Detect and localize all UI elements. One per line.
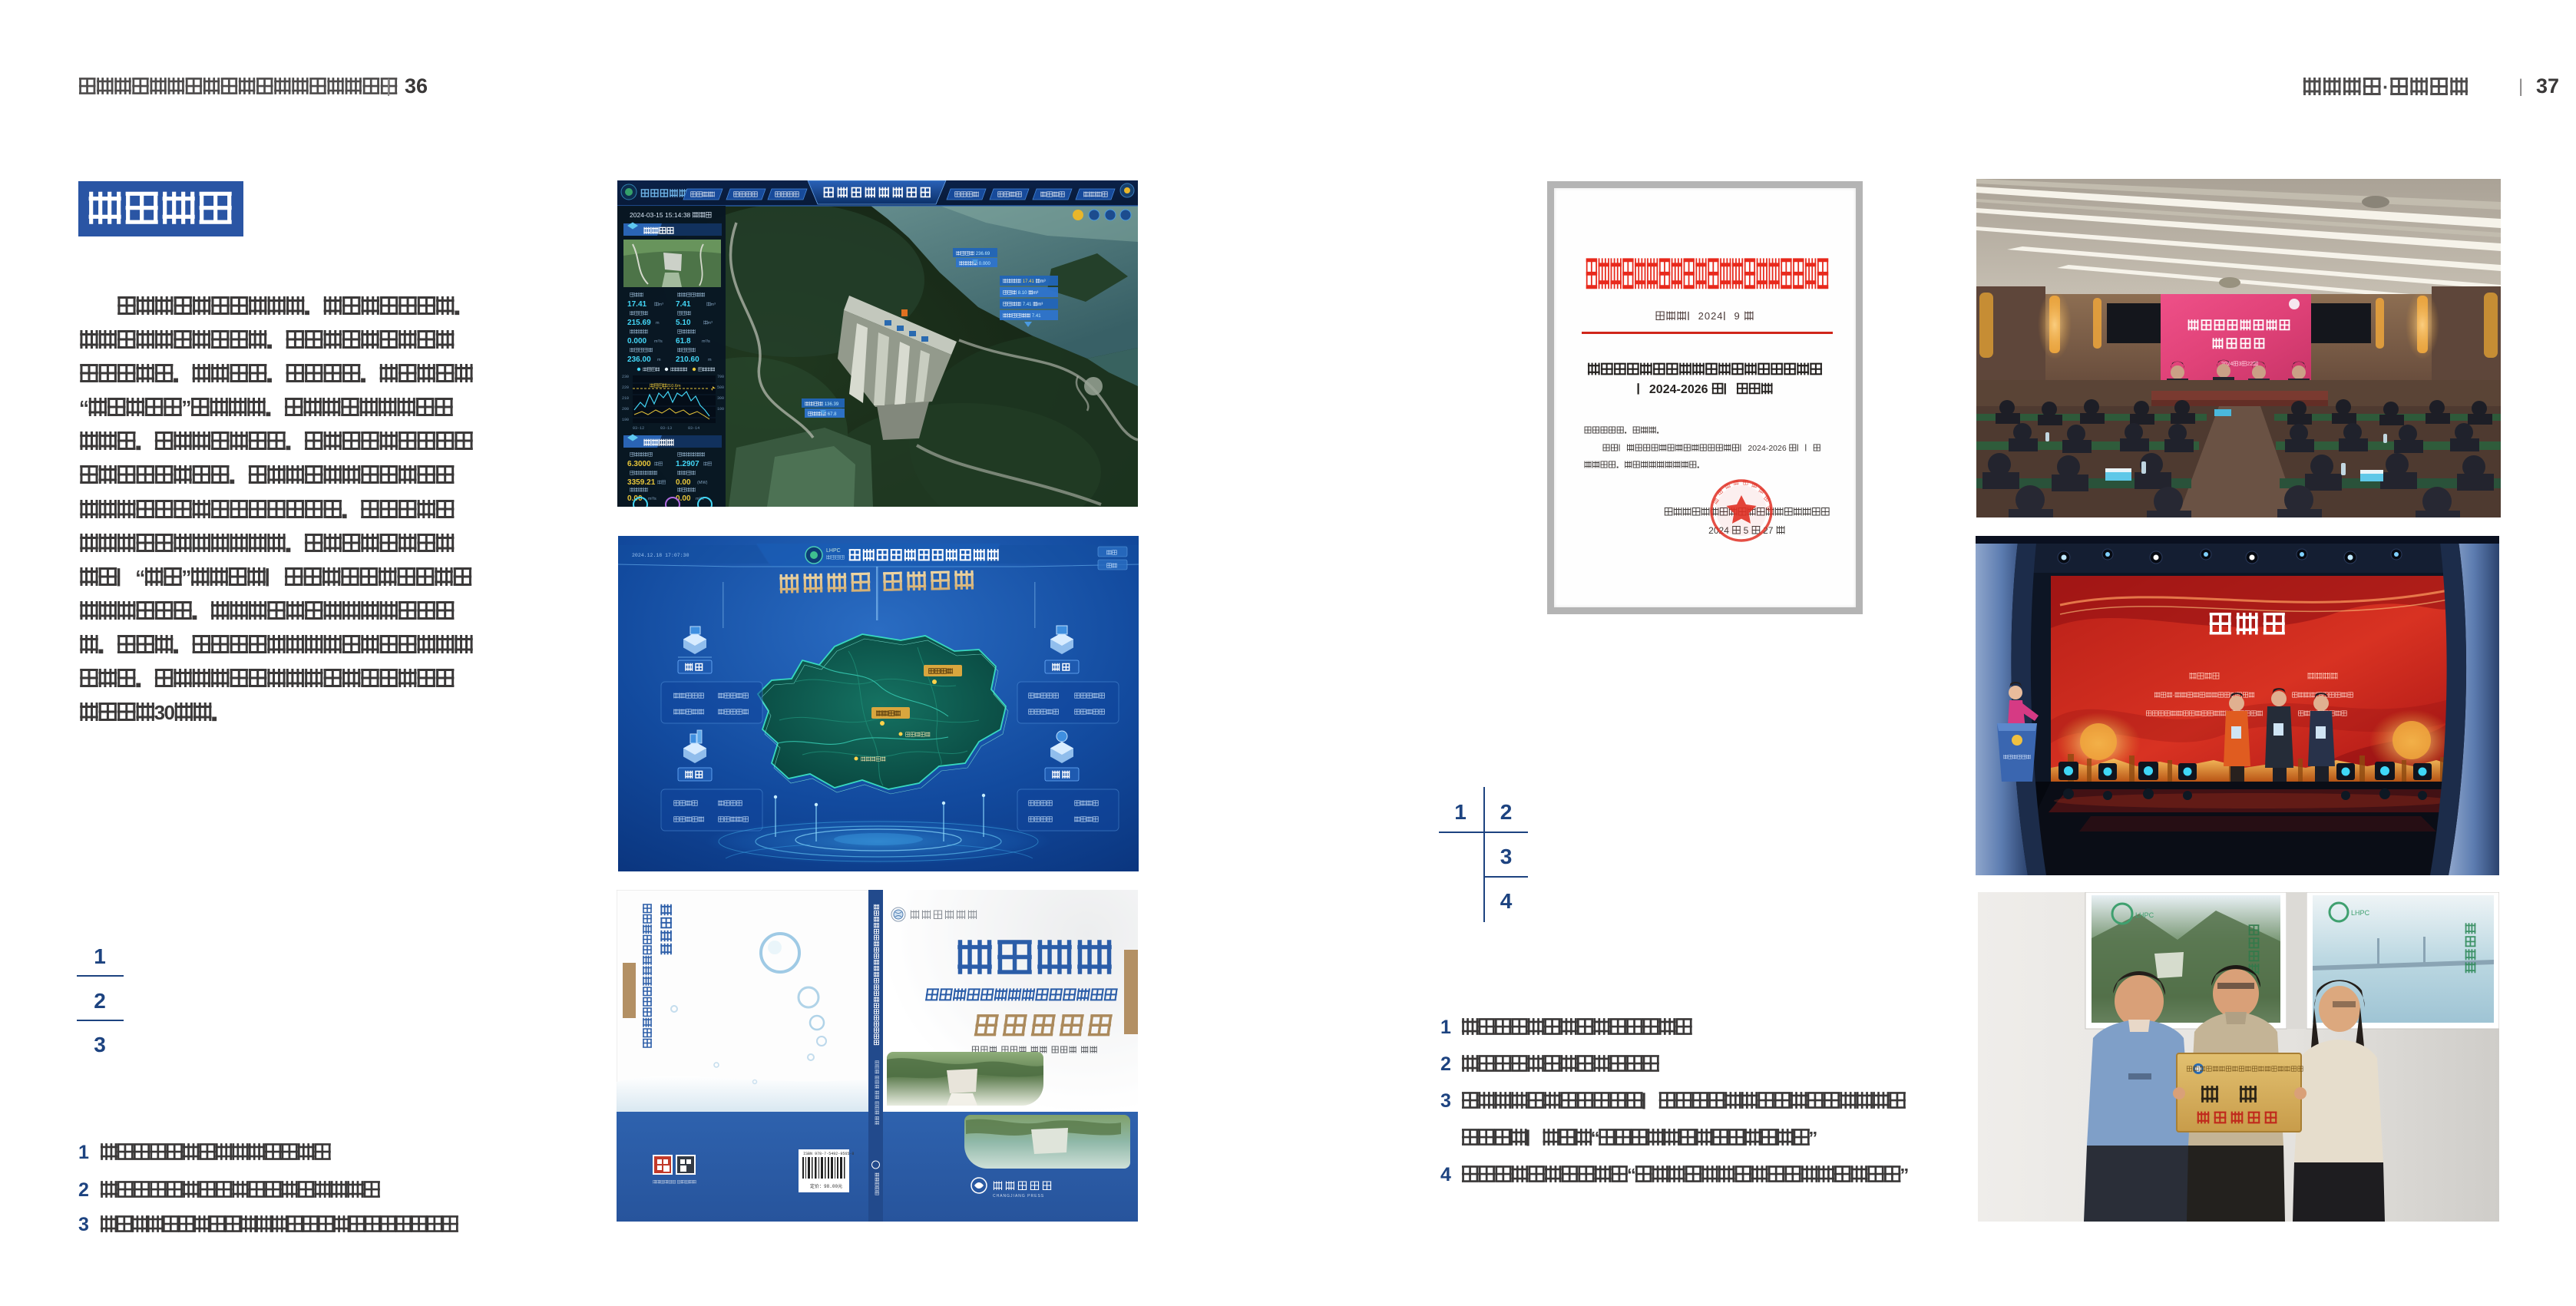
svg-text:监管全覆盖: 监管全覆盖: [673, 693, 704, 699]
svg-text:汛限水位210.6m: 汛限水位210.6m: [650, 383, 681, 388]
svg-text:总库容量 17.41 亿m³: 总库容量 17.41 亿m³: [1003, 279, 1046, 284]
svg-text:调度执行: 调度执行: [1040, 191, 1065, 198]
svg-text:三江口水库: 三江口水库: [861, 757, 886, 762]
svg-text:m: m: [657, 358, 661, 362]
svg-text:皂市水库: 皂市水库: [928, 667, 953, 675]
svg-text:江垭水库: 江垭水库: [876, 709, 901, 717]
svg-text:当前出力: 当前出力: [677, 471, 696, 476]
svg-text:创新创业竞赛: 创新创业竞赛: [2003, 755, 2031, 760]
svg-text:及时检修: 及时检修: [1028, 800, 1053, 807]
svg-text:研究与应用: 研究与应用: [973, 1013, 1119, 1040]
svg-text:亿m³: 亿m³: [703, 320, 713, 326]
svg-text:管理全周期: 管理全周期: [718, 709, 749, 716]
svg-text:澧水流域: 澧水流域: [956, 938, 1116, 980]
svg-text:2024-03-15 15:14:38 星期五: 2024-03-15 15:14:38 星期五: [630, 211, 712, 219]
svg-text:现代化水库运行管理矩阵: 现代化水库运行管理矩阵: [848, 548, 1000, 563]
svg-text:年发电计划: 年发电计划: [630, 452, 653, 458]
svg-text:预报精准化: 预报精准化: [1028, 693, 1059, 699]
svg-text:发电流量: 发电流量: [630, 488, 648, 493]
svg-text:7.41: 7.41: [676, 300, 691, 309]
svg-text:万度: 万度: [657, 480, 666, 485]
svg-text:0.00: 0.00: [627, 494, 643, 503]
svg-text:管控全天候: 管控全天候: [673, 709, 704, 716]
svg-text:m: m: [708, 358, 712, 362]
svg-text:完善体制: 完善体制: [673, 800, 698, 807]
svg-text:要素全要素: 要素全要素: [718, 693, 749, 699]
svg-text:(MW): (MW): [697, 481, 708, 485]
svg-text:菜单: 菜单: [1106, 563, 1117, 569]
svg-text:亿m³: 亿m³: [706, 302, 716, 307]
svg-text:澧水流域防洪控制水库汛期运行水位优化研究与应用: 澧水流域防洪控制水库汛期运行水位优化研究与应用: [873, 904, 880, 1045]
svg-text:澧水公司: 澧水公司: [826, 555, 845, 560]
svg-text:0.00: 0.00: [676, 478, 691, 487]
svg-text:蓄水量 8.10 亿m³: 蓄水量 8.10 亿m³: [1003, 290, 1038, 296]
svg-text:天气: 天气: [1106, 550, 1117, 556]
svg-text:出库流量: 出库流量: [677, 329, 696, 335]
svg-text:项目名称: 项目名称: [2189, 673, 2220, 681]
svg-text:190: 190: [622, 418, 629, 422]
svg-text:210.60: 210.60: [676, 355, 699, 364]
svg-text:定期体检: 定期体检: [1074, 800, 1099, 807]
svg-text:预演数字化: 预演数字化: [1028, 709, 1059, 716]
svg-text:长江出版社: 长江出版社: [993, 1180, 1054, 1192]
svg-text:200: 200: [622, 407, 629, 412]
svg-text:洪水预警: 洪水预警: [733, 191, 758, 198]
svg-text:220: 220: [622, 385, 629, 390]
svg-text:长江设计文库: 长江设计文库: [910, 909, 979, 921]
svg-text:100: 100: [717, 407, 724, 412]
svg-text:四制: 四制: [685, 770, 705, 780]
svg-text:澧: 澧: [1733, 480, 1739, 487]
svg-text:剩余防洪库容 7.41: 剩余防洪库容 7.41: [1003, 313, 1041, 319]
svg-text:230: 230: [622, 375, 629, 379]
svg-text:m³/s: m³/s: [648, 497, 656, 501]
svg-text:m: m: [656, 321, 660, 326]
svg-text:入库流量: 入库流量: [670, 367, 688, 372]
svg-text:定价：98.00元: 定价：98.00元: [810, 1183, 842, 1189]
svg-text:完善责任制: 完善责任制: [718, 816, 749, 823]
svg-text:宜冲桥水库: 宜冲桥水库: [905, 732, 931, 738]
svg-text:防洪控制水库汛期运行水位优化: 防洪控制水库汛期运行水位优化: [642, 903, 653, 1049]
svg-text:四预: 四预: [1052, 663, 1072, 673]
svg-text:亿m³: 亿m³: [654, 302, 663, 307]
svg-text:年累计发电量: 年累计发电量: [677, 452, 705, 458]
svg-text:澧水流域: 澧水流域: [659, 904, 673, 956]
svg-text:3359.21: 3359.21: [627, 478, 656, 487]
svg-text:水: 水: [1743, 480, 1748, 486]
svg-text:入库流量: 入库流量: [630, 329, 648, 335]
svg-text:澧水公司科技创新: 澧水公司科技创新: [2187, 319, 2292, 332]
svg-text:m³/s: m³/s: [702, 339, 710, 344]
svg-text:LHPC: LHPC: [826, 548, 841, 554]
svg-text:长江出版社: 长江出版社: [874, 1172, 879, 1195]
svg-text:03-14: 03-14: [688, 426, 699, 431]
svg-text:安澧: 安澧: [2201, 1085, 2277, 1106]
svg-text:报送单位: 报送单位: [2307, 673, 2338, 681]
svg-text:洪兴骏 沈坤民 鲁军 刘世军 等著: 洪兴骏 沈坤民 鲁军 刘世军 等著: [874, 1060, 879, 1125]
svg-text:亿度: 亿度: [703, 461, 713, 467]
svg-text:剩余防洪库容: 剩余防洪库容: [677, 293, 705, 298]
svg-text:预警提前化: 预警提前化: [1074, 693, 1105, 699]
svg-text:南水北调: 南水北调: [2463, 923, 2476, 975]
svg-text:工作会议: 工作会议: [2212, 338, 2267, 351]
svg-text:加强维护: 加强维护: [1028, 816, 1053, 823]
svg-text:LHPC: LHPC: [2135, 911, 2154, 919]
svg-text:保障安全: 保障安全: [1074, 816, 1099, 823]
svg-text:坝上水位: 坝上水位: [630, 311, 648, 316]
svg-text:一等奖: 一等奖: [2209, 611, 2290, 638]
svg-text:江垭发电: 江垭发电: [643, 438, 675, 448]
svg-text:300: 300: [717, 396, 724, 401]
svg-text:17.41: 17.41: [627, 300, 647, 309]
svg-text:根治澧水 造福人民: 根治澧水 造福人民: [779, 569, 977, 596]
svg-text:长江设计集团 微信公众号: 长江设计集团 微信公众号: [653, 1180, 696, 1185]
svg-text:6.3000: 6.3000: [627, 460, 651, 468]
svg-text:创新工作室: 创新工作室: [2197, 1111, 2281, 1126]
svg-text:月累计发电量: 月累计发电量: [630, 471, 657, 476]
svg-text:5.10: 5.10: [676, 319, 691, 327]
svg-text:强化法制治: 强化法制治: [673, 816, 704, 823]
svg-text:防洪预警: 防洪预警: [775, 191, 799, 198]
svg-text:LHPC: LHPC: [2351, 909, 2370, 917]
svg-text:236.00: 236.00: [627, 355, 651, 364]
svg-text:弃水流量: 弃水流量: [677, 488, 696, 493]
svg-text:出库沙: 出库沙: [630, 293, 643, 298]
svg-text:数字孪生江垭皂市: 数字孪生江垭皂市: [823, 187, 934, 200]
svg-text:2024.12.18 17:07:30: 2024.12.18 17:07:30: [632, 553, 689, 558]
svg-text:蓄水量: 蓄水量: [677, 311, 691, 316]
svg-text:215.69: 215.69: [627, 319, 651, 327]
svg-text:流: 流: [1751, 482, 1758, 489]
svg-text:坝下水位 136.39: 坝下水位 136.39: [805, 402, 839, 407]
svg-text:工程巡视: 工程巡视: [1083, 191, 1108, 198]
svg-text:四全: 四全: [685, 663, 705, 673]
svg-text:03-13: 03-13: [660, 426, 672, 431]
svg-text:防洪控制水库汛期运行水位优化: 防洪控制水库汛期运行水位优化: [924, 987, 1119, 1003]
svg-text:61.8: 61.8: [676, 337, 691, 346]
svg-text:1.2907: 1.2907: [676, 460, 699, 468]
svg-text:预案科学化: 预案科学化: [1074, 709, 1105, 716]
svg-text:210: 210: [622, 396, 629, 401]
svg-text:ISBN 978-7-5492-9565-8: ISBN 978-7-5492-9565-8: [803, 1152, 854, 1156]
svg-text:m³/s: m³/s: [654, 339, 663, 344]
svg-text:03-12: 03-12: [633, 426, 644, 431]
svg-text:出库流量: 出库流量: [698, 367, 716, 372]
svg-text:预案生成: 预案生成: [997, 191, 1022, 198]
svg-text:500: 500: [717, 385, 724, 390]
svg-text:亿度: 亿度: [654, 461, 663, 467]
svg-text:0.00: 0.00: [676, 494, 691, 503]
svg-text:CHANGJIANG PRESS: CHANGJIANG PRESS: [993, 1194, 1044, 1199]
svg-text:汛限水位: 汛限水位: [677, 348, 696, 353]
svg-text:暴雨预测: 暴雨预测: [954, 191, 979, 198]
svg-text:正常蓄水位: 正常蓄水位: [630, 348, 653, 353]
svg-text:湖南澧水流域水利水电开发有限责任公司: 湖南澧水流域水利水电开发有限责任公司: [2187, 1066, 2304, 1073]
svg-text:江垭防洪: 江垭防洪: [643, 226, 675, 236]
svg-text:四管: 四管: [1052, 770, 1072, 780]
svg-text:700: 700: [717, 375, 724, 379]
svg-text:防洪库容 7.41 亿m³: 防洪库容 7.41 亿m³: [1003, 302, 1043, 307]
svg-text:坝上水位: 坝上水位: [643, 367, 660, 372]
svg-text:0.000: 0.000: [627, 337, 647, 346]
svg-text:健全机制: 健全机制: [718, 800, 742, 807]
svg-text:实时监测: 实时监测: [690, 191, 715, 198]
svg-text:坝上水位 236.69: 坝上水位 236.69: [956, 251, 990, 256]
